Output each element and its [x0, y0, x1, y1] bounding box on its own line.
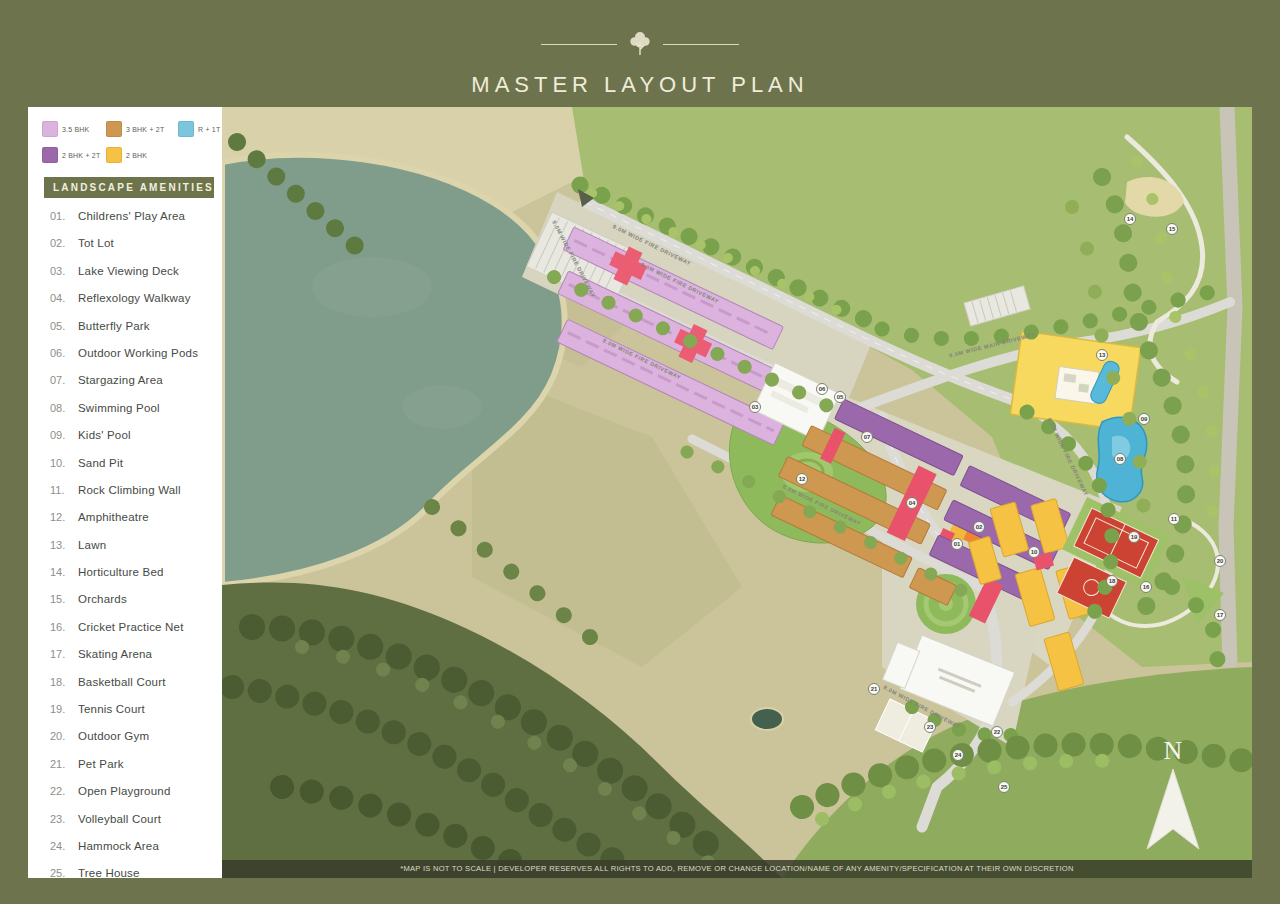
- legend-color-swatch: [42, 147, 58, 163]
- pond: [751, 708, 783, 730]
- amenity-number: 05.: [50, 320, 78, 332]
- amenity-label: Kids' Pool: [78, 429, 131, 441]
- amenity-number: 14.: [50, 566, 78, 578]
- amenity-label: Reflexology Walkway: [78, 292, 191, 304]
- content: 3.5 BHK 3 BHK + 2T R + 1T 2 BHK + 2T 2 B…: [28, 107, 1252, 878]
- amenity-number: 19.: [50, 703, 78, 715]
- legend-item: 3 BHK + 2T: [106, 121, 176, 137]
- amenity-label: Butterfly Park: [78, 320, 150, 332]
- amenity-list-item: 07. Stargazing Area: [50, 374, 222, 392]
- amenity-list-item: 10. Sand Pit: [50, 457, 222, 475]
- legend-item: R + 1T: [178, 121, 220, 137]
- legend-label: 2 BHK + 2T: [62, 152, 100, 159]
- amenity-label: Lake Viewing Deck: [78, 265, 179, 277]
- amenity-label: Hammock Area: [78, 840, 159, 852]
- amenity-number: 22.: [50, 785, 78, 797]
- amenity-label: Stargazing Area: [78, 374, 163, 386]
- amenity-label: Sand Pit: [78, 457, 123, 469]
- amenity-number: 03.: [50, 265, 78, 277]
- amenity-number: 07.: [50, 374, 78, 386]
- amenity-list-item: 03. Lake Viewing Deck: [50, 265, 222, 283]
- ornament-line-left: [541, 44, 617, 45]
- amenity-number: 24.: [50, 840, 78, 852]
- amenity-list-item: 22. Open Playground: [50, 785, 222, 803]
- amenity-label: Cricket Practice Net: [78, 621, 184, 633]
- amenity-label: Volleyball Court: [78, 813, 161, 825]
- amenity-list-item: 02. Tot Lot: [50, 237, 222, 255]
- amenity-label: Open Playground: [78, 785, 171, 797]
- legend-item: 3.5 BHK: [42, 121, 104, 137]
- amenity-label: Basketball Court: [78, 676, 166, 688]
- page-title: MASTER LAYOUT PLAN: [0, 72, 1280, 98]
- amenity-label: Tennis Court: [78, 703, 145, 715]
- legend-label: 3.5 BHK: [62, 126, 89, 133]
- amenity-number: 21.: [50, 758, 78, 770]
- amenity-number: 18.: [50, 676, 78, 688]
- tree-icon: [627, 30, 653, 58]
- legend-label: 2 BHK: [126, 152, 147, 159]
- amenity-list-item: 15. Orchards: [50, 593, 222, 611]
- amenity-list-item: 09. Kids' Pool: [50, 429, 222, 447]
- amenity-list-item: 12. Amphitheatre: [50, 511, 222, 529]
- legend-item: 2 BHK: [106, 147, 176, 163]
- map-disclaimer: *MAP IS NOT TO SCALE | DEVELOPER RESERVE…: [222, 860, 1252, 878]
- amenity-number: 04.: [50, 292, 78, 304]
- amenity-label: Horticulture Bed: [78, 566, 164, 578]
- amenity-list-item: 16. Cricket Practice Net: [50, 621, 222, 639]
- amenity-list-item: 14. Horticulture Bed: [50, 566, 222, 584]
- site-map: N 9.0M WIDE FIRE DRIVEWAY9.0M WIDE FIRE …: [222, 107, 1252, 878]
- amenity-label: Orchards: [78, 593, 127, 605]
- amenity-number: 16.: [50, 621, 78, 633]
- amenity-label: Outdoor Working Pods: [78, 347, 198, 359]
- header-ornament: [0, 30, 1280, 58]
- amenity-label: Lawn: [78, 539, 106, 551]
- amenity-number: 11.: [50, 484, 78, 496]
- header: MASTER LAYOUT PLAN: [0, 0, 1280, 107]
- legend-color-swatch: [42, 121, 58, 137]
- amenity-list-item: 17. Skating Arena: [50, 648, 222, 666]
- master-layout-plan-page: MASTER LAYOUT PLAN 3.5 BHK 3 BHK + 2T R …: [0, 0, 1280, 904]
- legend-color-swatch: [178, 121, 194, 137]
- existing-road: [1226, 107, 1235, 667]
- amenity-list-item: 20. Outdoor Gym: [50, 730, 222, 748]
- unit-type-legend: 3.5 BHK 3 BHK + 2T R + 1T 2 BHK + 2T 2 B…: [42, 121, 218, 163]
- amenity-label: Swimming Pool: [78, 402, 160, 414]
- legend-label: R + 1T: [198, 126, 220, 133]
- legend-item: 2 BHK + 2T: [42, 147, 104, 163]
- amenity-label: Rock Climbing Wall: [78, 484, 181, 496]
- amenity-number: 01.: [50, 210, 78, 222]
- amenity-number: 20.: [50, 730, 78, 742]
- amenity-list-item: 01. Childrens' Play Area: [50, 210, 222, 228]
- amenity-number: 02.: [50, 237, 78, 249]
- amenity-number: 13.: [50, 539, 78, 551]
- amenity-list-item: 08. Swimming Pool: [50, 402, 222, 420]
- amenity-list-item: 11. Rock Climbing Wall: [50, 484, 222, 502]
- amenity-list-item: 13. Lawn: [50, 539, 222, 557]
- amenity-number: 09.: [50, 429, 78, 441]
- amenity-number: 12.: [50, 511, 78, 523]
- amenity-number: 08.: [50, 402, 78, 414]
- amenity-number: 15.: [50, 593, 78, 605]
- amenity-list-item: 19. Tennis Court: [50, 703, 222, 721]
- amenity-label: Tot Lot: [78, 237, 114, 249]
- amenity-label: Pet Park: [78, 758, 124, 770]
- sidebar: 3.5 BHK 3 BHK + 2T R + 1T 2 BHK + 2T 2 B…: [28, 107, 222, 878]
- legend-color-swatch: [106, 147, 122, 163]
- amenity-list-item: 25. Tree House: [50, 867, 222, 885]
- amenity-label: Skating Arena: [78, 648, 152, 660]
- amenity-list-item: 05. Butterfly Park: [50, 320, 222, 338]
- amenity-number: 06.: [50, 347, 78, 359]
- aerial-map-illustration: N: [222, 107, 1252, 878]
- amenity-label: Amphitheatre: [78, 511, 149, 523]
- amenity-number: 17.: [50, 648, 78, 660]
- legend-label: 3 BHK + 2T: [126, 126, 164, 133]
- amenity-list-item: 18. Basketball Court: [50, 676, 222, 694]
- amenity-number: 25.: [50, 867, 78, 879]
- ornament-line-right: [663, 44, 739, 45]
- amenity-label: Tree House: [78, 867, 140, 879]
- north-label: N: [1164, 736, 1183, 765]
- amenity-list-item: 04. Reflexology Walkway: [50, 292, 222, 310]
- legend-color-swatch: [106, 121, 122, 137]
- amenity-list-item: 21. Pet Park: [50, 758, 222, 776]
- amenity-list-item: 23. Volleyball Court: [50, 813, 222, 831]
- amenity-list-item: 24. Hammock Area: [50, 840, 222, 858]
- amenities-header: LANDSCAPE AMENITIES: [44, 177, 214, 198]
- amenity-list-item: 06. Outdoor Working Pods: [50, 347, 222, 365]
- amenity-label: Childrens' Play Area: [78, 210, 185, 222]
- amenity-number: 23.: [50, 813, 78, 825]
- amenity-label: Outdoor Gym: [78, 730, 149, 742]
- amenity-list: 01. Childrens' Play Area 02. Tot Lot 03.…: [28, 210, 222, 885]
- amenity-number: 10.: [50, 457, 78, 469]
